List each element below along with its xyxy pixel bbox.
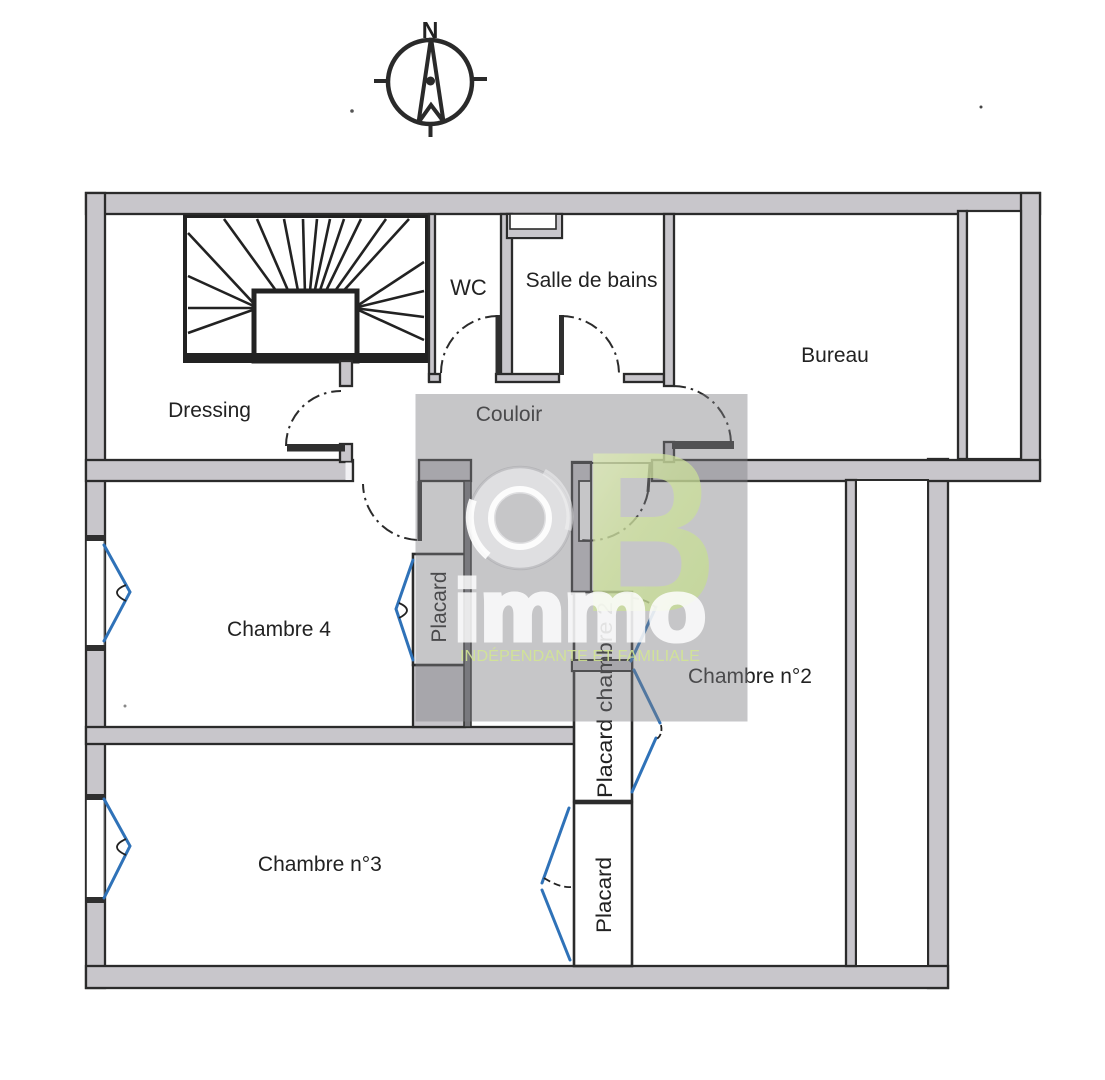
- svg-text:Chambre n°3: Chambre n°3: [258, 853, 382, 876]
- svg-text:N: N: [422, 17, 439, 43]
- svg-text:Placard: Placard: [593, 857, 616, 933]
- svg-text:WC: WC: [450, 275, 487, 300]
- svg-text:immo: immo: [454, 564, 706, 659]
- svg-text:Bureau: Bureau: [801, 344, 869, 367]
- svg-text:INDÉPENDANTE ET FAMILIALE: INDÉPENDANTE ET FAMILIALE: [460, 646, 700, 665]
- svg-text:Salle de bains: Salle de bains: [526, 269, 658, 292]
- svg-text:Dressing: Dressing: [168, 399, 251, 422]
- svg-text:Chambre 4: Chambre 4: [227, 618, 331, 641]
